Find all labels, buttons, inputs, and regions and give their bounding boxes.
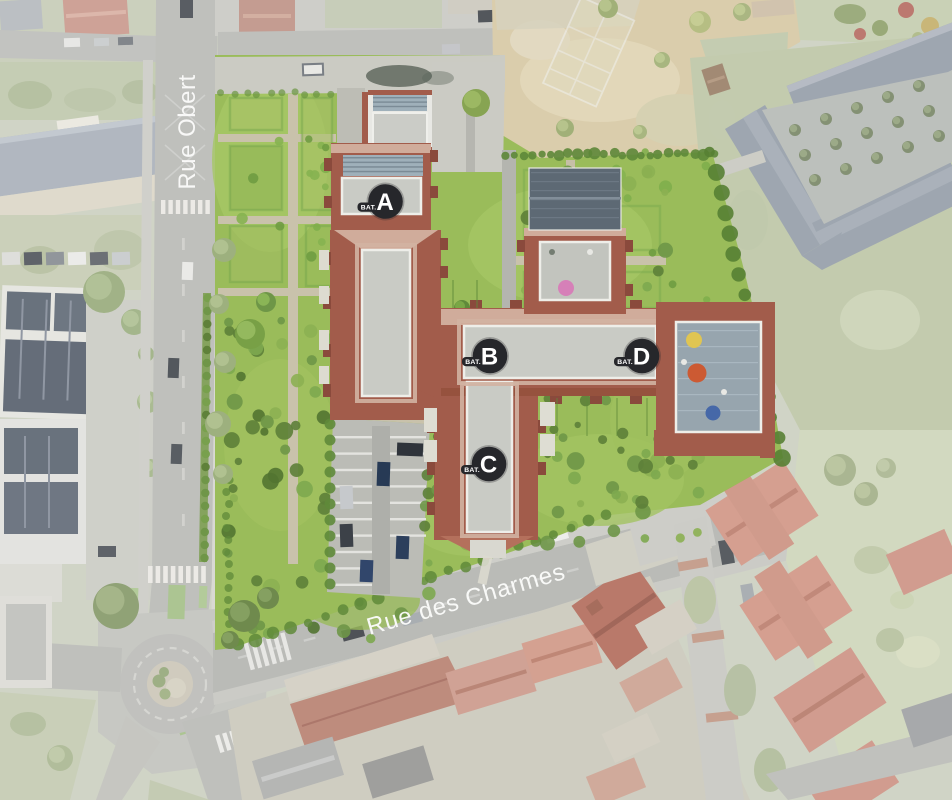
svg-text:D: D	[633, 344, 650, 371]
svg-text:BAT.: BAT.	[617, 359, 633, 366]
svg-text:BAT.: BAT.	[361, 205, 377, 212]
svg-text:BAT.: BAT.	[465, 359, 481, 366]
svg-text:Rue Obert: Rue Obert	[174, 74, 201, 189]
svg-text:A: A	[376, 189, 393, 216]
svg-text:C: C	[480, 452, 497, 479]
svg-text:B: B	[481, 344, 498, 371]
svg-text:BAT.: BAT.	[464, 467, 480, 474]
